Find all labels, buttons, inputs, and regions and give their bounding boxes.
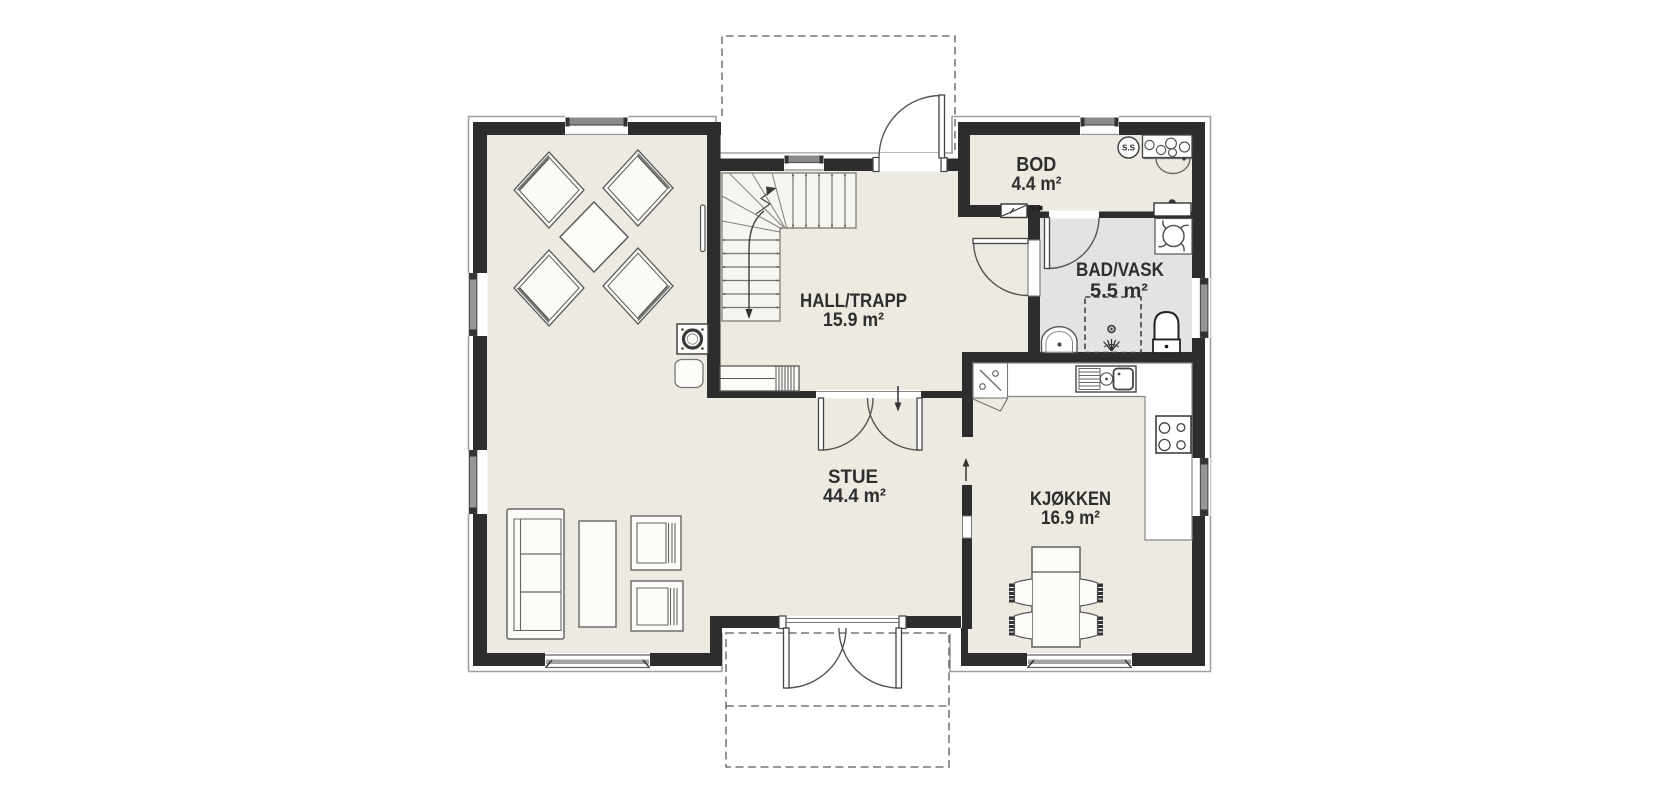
svg-text:KJØKKEN: KJØKKEN [1030, 489, 1111, 510]
svg-text:HALL/TRAPP: HALL/TRAPP [800, 291, 907, 312]
svg-text:15.9 m²: 15.9 m² [823, 310, 884, 331]
svg-text:S.S: S.S [1122, 144, 1136, 153]
svg-text:4.4 m²: 4.4 m² [1012, 174, 1062, 195]
svg-text:16.9 m²: 16.9 m² [1041, 508, 1100, 529]
svg-text:STUE: STUE [828, 467, 878, 488]
svg-text:5.5 m²: 5.5 m² [1090, 281, 1148, 302]
svg-text:BAD/VASK: BAD/VASK [1076, 260, 1164, 281]
svg-text:BOD: BOD [1016, 154, 1056, 176]
svg-text:44.4 m²: 44.4 m² [823, 486, 886, 507]
